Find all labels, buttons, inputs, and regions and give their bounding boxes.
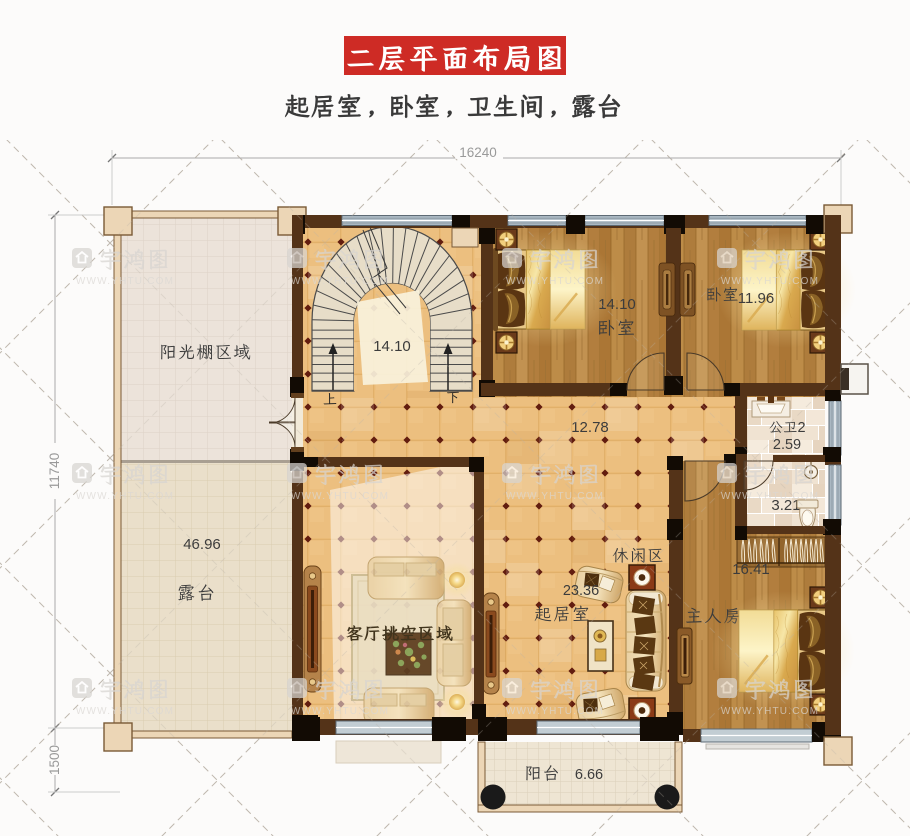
svg-text:WWW.YHTU.COM: WWW.YHTU.COM (721, 491, 819, 502)
svg-text:WWW.YHTU.COM: WWW.YHTU.COM (76, 491, 174, 502)
svg-text:WWW.YHTU.COM: WWW.YHTU.COM (721, 706, 819, 717)
svg-text:WWW.YHTU.COM: WWW.YHTU.COM (76, 276, 174, 287)
svg-text:WWW.YHTU.COM: WWW.YHTU.COM (291, 276, 389, 287)
svg-text:WWW.YHTU.COM: WWW.YHTU.COM (291, 491, 389, 502)
svg-text:WWW.YHTU.COM: WWW.YHTU.COM (76, 706, 174, 717)
svg-text:WWW.YHTU.COM: WWW.YHTU.COM (506, 491, 604, 502)
svg-text:WWW.YHTU.COM: WWW.YHTU.COM (506, 276, 604, 287)
svg-text:WWW.YHTU.COM: WWW.YHTU.COM (721, 276, 819, 287)
svg-text:WWW.YHTU.COM: WWW.YHTU.COM (506, 706, 604, 717)
svg-text:WWW.YHTU.COM: WWW.YHTU.COM (291, 706, 389, 717)
